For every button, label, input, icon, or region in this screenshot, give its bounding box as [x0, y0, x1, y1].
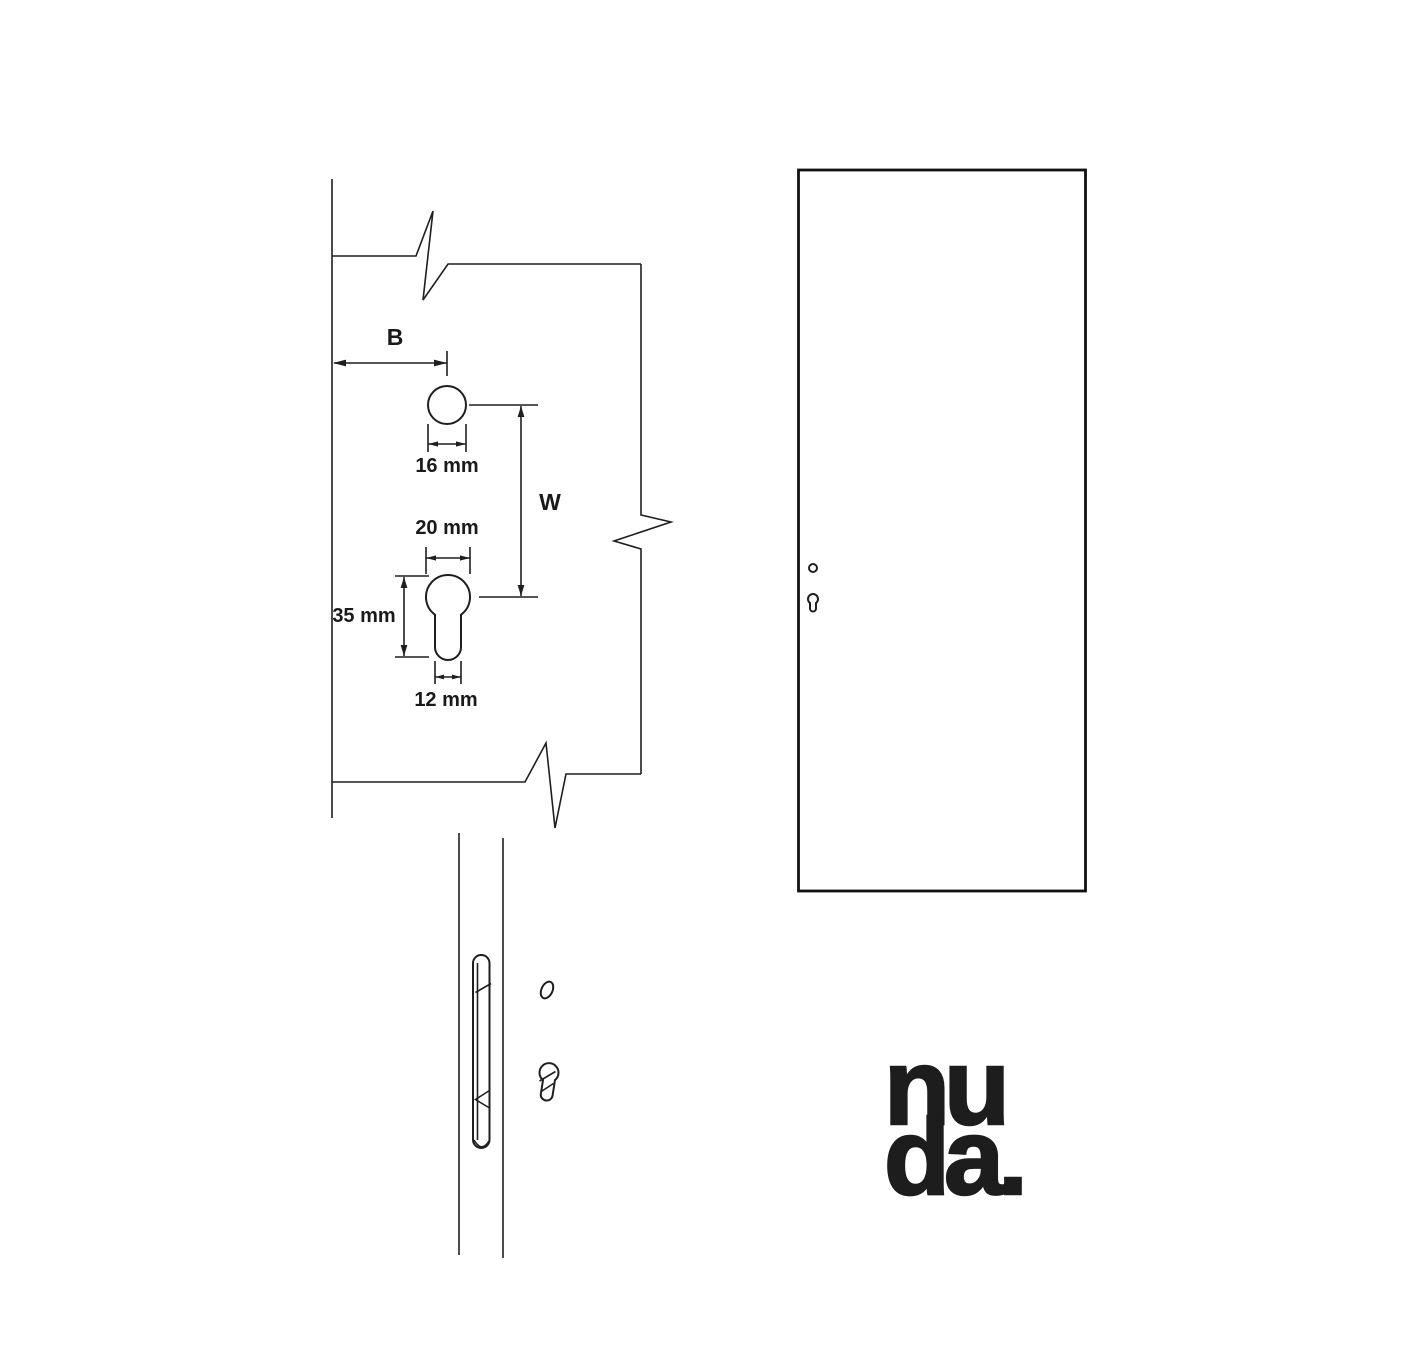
dim-ticks-35mm	[395, 576, 429, 657]
arrowhead-right	[460, 555, 470, 560]
arrowhead-right	[456, 441, 466, 446]
technical-linework	[0, 0, 1417, 1354]
drawing-canvas: B W 16 mm 20 mm 35 mm 12 mm nu da.	[0, 0, 1417, 1354]
euro-cylinder-hole	[426, 575, 470, 660]
dim-label-12mm: 12 mm	[414, 688, 477, 712]
face-right-break-edge	[614, 264, 671, 774]
door-edge-view	[459, 833, 559, 1258]
dim-label-16mm: 16 mm	[415, 454, 478, 478]
door-cylinder-hole	[808, 594, 818, 612]
face-top-break-edge	[332, 211, 641, 300]
dim-label-backset: B	[387, 324, 404, 352]
arrowhead-down	[518, 585, 525, 596]
arrowhead-up	[518, 406, 525, 417]
dim-ext-12mm	[435, 661, 461, 684]
lock-faceplate	[473, 955, 490, 1148]
arrowhead-right	[452, 675, 461, 680]
arrowhead-left	[333, 360, 346, 367]
dimension-16mm	[428, 424, 466, 452]
dimension-12mm	[435, 661, 461, 684]
logo-line-2: da.	[884, 1122, 1022, 1192]
dimension-w	[469, 405, 538, 597]
arrowhead-left	[428, 441, 438, 446]
dimension-35mm	[395, 576, 429, 657]
dimension-20mm	[426, 547, 470, 574]
dim-label-20mm: 20 mm	[415, 516, 478, 540]
arrowhead-left	[426, 555, 436, 560]
dim-label-35mm: 35 mm	[332, 604, 395, 628]
arrowhead-down	[401, 645, 408, 656]
nuda-logo: nu da.	[884, 1052, 1022, 1192]
dim-ext-16mm	[428, 424, 466, 452]
face-bottom-break-edge	[332, 743, 641, 828]
door-elevation-view	[799, 170, 1086, 891]
handle-spindle-hole	[428, 386, 466, 424]
arrowhead-right	[434, 360, 447, 367]
dim-ext-20mm	[426, 547, 470, 574]
door-outline	[799, 170, 1086, 891]
arrowhead-left	[435, 675, 444, 680]
door-face-cutout-view	[332, 179, 671, 828]
arrowhead-up	[401, 577, 408, 588]
dim-label-w: W	[539, 489, 561, 517]
dimension-backset	[333, 351, 447, 376]
spindle-hole-perspective	[538, 980, 555, 1001]
door-handle-hole	[809, 564, 817, 572]
cylinder-hole-perspective	[540, 1063, 559, 1100]
